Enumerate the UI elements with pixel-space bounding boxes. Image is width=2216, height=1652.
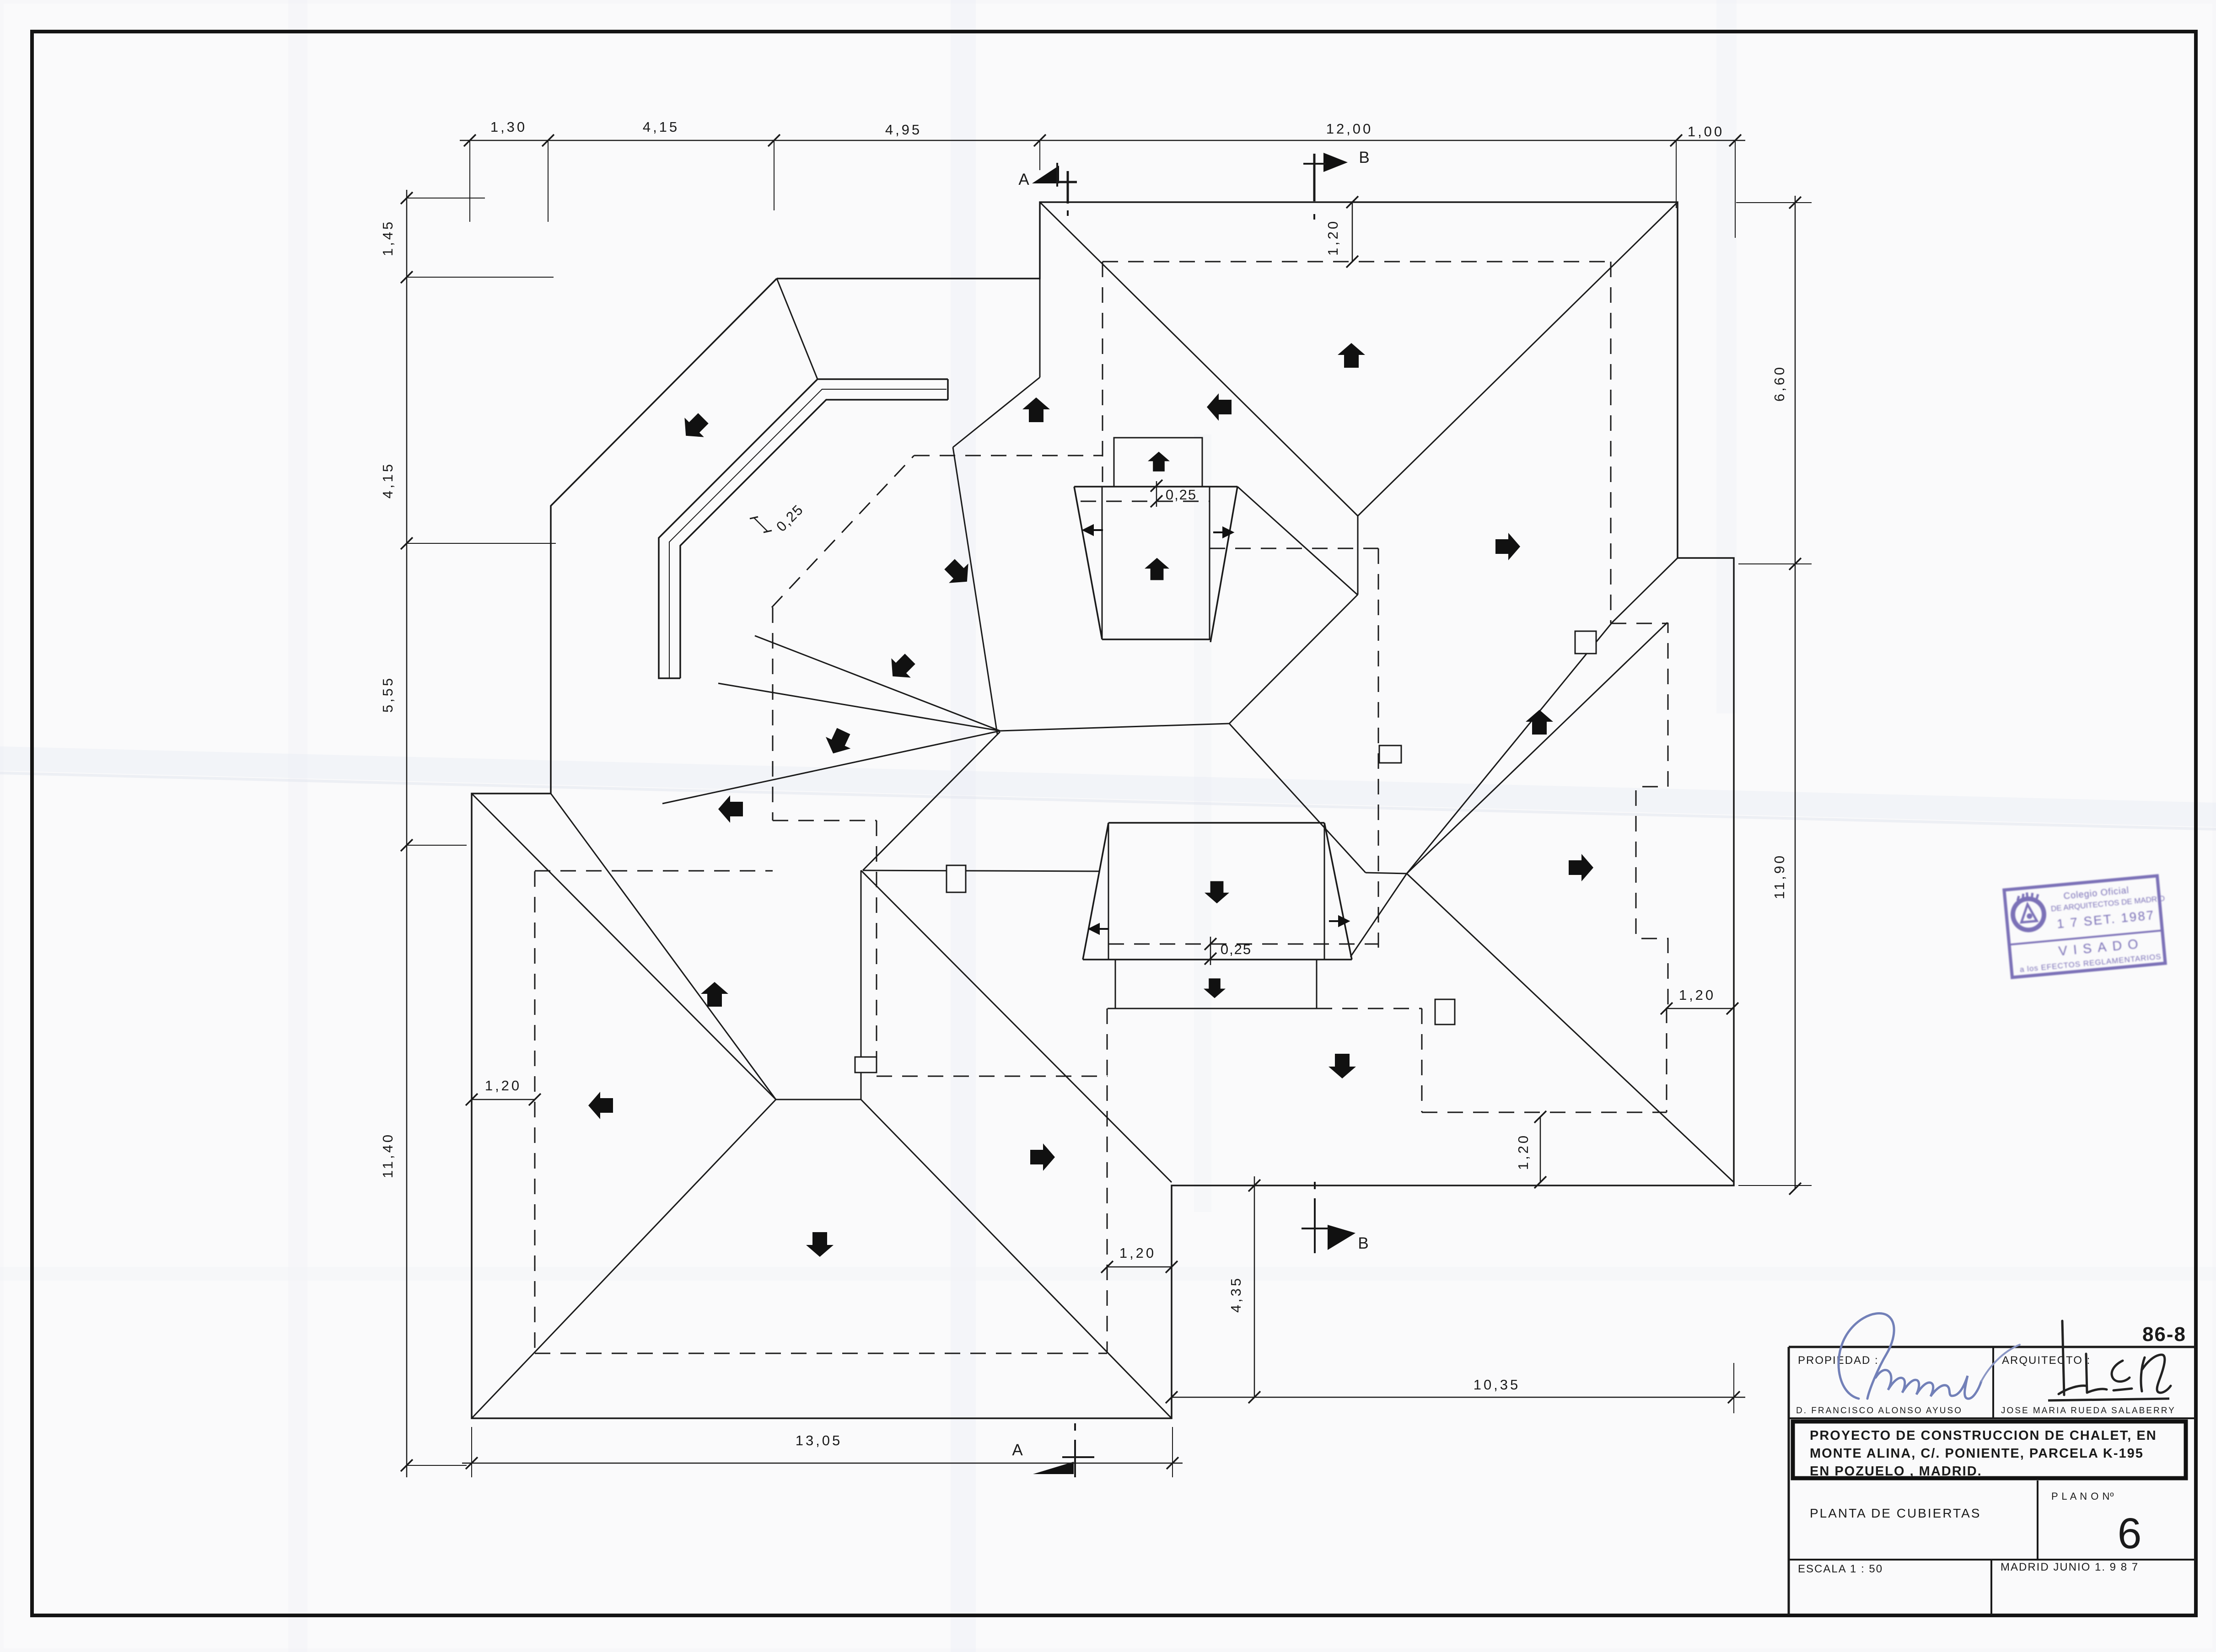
svg-text:0,25: 0,25 bbox=[1166, 487, 1197, 503]
svg-text:10,35: 10,35 bbox=[1474, 1377, 1521, 1393]
svg-text:A: A bbox=[1018, 171, 1029, 188]
svg-text:6,60: 6,60 bbox=[1771, 365, 1787, 402]
svg-text:0,25: 0,25 bbox=[1221, 941, 1252, 957]
svg-text:11,40: 11,40 bbox=[380, 1132, 396, 1178]
svg-text:B: B bbox=[1358, 1234, 1368, 1252]
svg-text:4,35: 4,35 bbox=[1228, 1276, 1244, 1313]
svg-text:1,45: 1,45 bbox=[380, 220, 396, 256]
svg-text:MADRID JUNIO 1. 9 8 7: MADRID JUNIO 1. 9 8 7 bbox=[2001, 1561, 2139, 1573]
svg-text:1,00: 1,00 bbox=[1688, 123, 1724, 139]
svg-text:P L A N O Nº: P L A N O Nº bbox=[2051, 1491, 2114, 1502]
svg-text:JOSE MARIA RUEDA SALABERRY: JOSE MARIA RUEDA SALABERRY bbox=[2001, 1406, 2176, 1416]
svg-text:4,95: 4,95 bbox=[885, 122, 922, 138]
svg-text:1,20: 1,20 bbox=[1119, 1245, 1156, 1261]
svg-text:1,30: 1,30 bbox=[490, 119, 527, 135]
svg-text:11,90: 11,90 bbox=[1771, 853, 1787, 899]
svg-text:1,20: 1,20 bbox=[1679, 987, 1716, 1003]
svg-text:6: 6 bbox=[2118, 1509, 2142, 1558]
svg-text:B: B bbox=[1359, 149, 1369, 166]
svg-text:ESCALA 1 : 50: ESCALA 1 : 50 bbox=[1798, 1563, 1883, 1575]
svg-text:86-8: 86-8 bbox=[2142, 1323, 2186, 1346]
svg-text:PROYECTO DE CONSTRUCCION DE CH: PROYECTO DE CONSTRUCCION DE CHALET, EN bbox=[1810, 1428, 2157, 1443]
svg-text:ARQUITECTO :: ARQUITECTO : bbox=[2002, 1354, 2091, 1367]
svg-text:4,15: 4,15 bbox=[643, 119, 679, 135]
svg-text:PLANTA DE CUBIERTAS: PLANTA DE CUBIERTAS bbox=[1810, 1506, 1981, 1520]
svg-text:1,20: 1,20 bbox=[485, 1078, 522, 1094]
svg-text:MONTE ALINA, C/. PONIENTE, PAR: MONTE ALINA, C/. PONIENTE, PARCELA K-195 bbox=[1810, 1446, 2144, 1461]
svg-text:1,20: 1,20 bbox=[1325, 219, 1341, 256]
svg-text:5,55: 5,55 bbox=[380, 676, 396, 713]
svg-text:4,15: 4,15 bbox=[380, 462, 396, 499]
svg-text:A: A bbox=[1012, 1441, 1023, 1459]
svg-text:EN POZUELO , MADRID.: EN POZUELO , MADRID. bbox=[1810, 1464, 1982, 1479]
svg-text:1,20: 1,20 bbox=[1515, 1133, 1531, 1170]
svg-text:D. FRANCISCO ALONSO AYUSO: D. FRANCISCO ALONSO AYUSO bbox=[1796, 1406, 1963, 1416]
svg-text:12,00: 12,00 bbox=[1326, 121, 1373, 137]
svg-text:13,05: 13,05 bbox=[796, 1432, 843, 1448]
